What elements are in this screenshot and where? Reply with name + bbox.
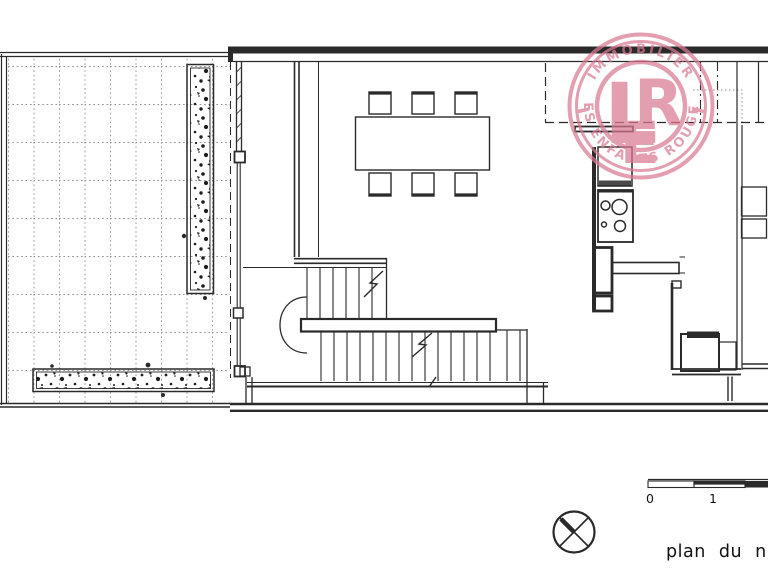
burner-medium (615, 221, 626, 232)
stair-handrail-curve (280, 297, 307, 353)
facade-joint-mid (234, 308, 244, 318)
dining-table (356, 117, 490, 170)
glass-facade (231, 62, 253, 403)
stove (598, 190, 633, 242)
exterior-step-horizontal (742, 364, 768, 369)
chair (369, 92, 391, 114)
dining-chairs-bottom (369, 173, 477, 196)
appliance-column (594, 248, 613, 294)
stairwell-wall (243, 62, 387, 320)
staircase (247, 268, 548, 403)
facade-wall-segment (237, 62, 242, 152)
vegetation-texture (191, 68, 211, 290)
scale-bar: 0 1 (646, 480, 768, 507)
floor-plan-drawing: IMMOBILIER LES ENFANTS ROUGES L R E 0 1 … (0, 0, 768, 576)
sink-edge (599, 181, 631, 187)
chair (412, 92, 434, 114)
burner-small (601, 201, 610, 210)
terrace-left-wall (2, 54, 7, 405)
stamp-monogram-e: E (620, 109, 660, 177)
north-icon (554, 512, 595, 553)
burner-large (612, 200, 627, 215)
scale-segment-1 (648, 481, 694, 488)
facade-glazing (237, 163, 240, 366)
caption: plan du niveau (666, 542, 768, 562)
exterior-walls (228, 47, 768, 411)
kitchen-counter (613, 263, 680, 274)
burner-small (602, 222, 607, 227)
stair-handrail-bar (301, 319, 496, 332)
exterior-step-vertical (728, 377, 732, 402)
chair (412, 173, 434, 196)
upper-flight-treads (307, 268, 372, 319)
side-step (719, 342, 736, 370)
lower-flight-treads (321, 330, 520, 381)
scale-label-zero: 0 (646, 491, 654, 506)
scale-label-one: 1 (709, 491, 717, 506)
armchair-back (687, 332, 719, 339)
chair (369, 173, 391, 196)
armchair (681, 334, 719, 371)
floor-plan-page: IMMOBILIER LES ENFANTS ROUGES L R E 0 1 … (0, 0, 768, 576)
planter-vertical (182, 65, 214, 301)
stair-wall-return (294, 259, 387, 264)
chair (455, 173, 477, 196)
fixture-upper (742, 187, 767, 216)
fixture-lower (742, 219, 767, 238)
terrace (0, 53, 230, 408)
bottom-wall (230, 404, 768, 411)
appliance-drawer (594, 296, 613, 311)
stair-wall-vertical (295, 62, 300, 257)
stair-direction-break-lower (412, 333, 432, 357)
terrace-top-edge (0, 53, 230, 57)
chair (455, 92, 477, 114)
right-room (737, 62, 767, 370)
vegetation-texture (37, 372, 211, 389)
stair-direction-break-upper (364, 271, 383, 297)
partition-hook (672, 281, 681, 288)
facade-post-top (235, 152, 246, 163)
dining-set (356, 92, 490, 196)
terrace-bottom-edge (0, 404, 230, 408)
scale-segment-3 (745, 481, 768, 488)
wall-stub-bottom (246, 377, 252, 403)
sitting-corner (672, 281, 768, 401)
dining-chairs-top (369, 92, 477, 114)
